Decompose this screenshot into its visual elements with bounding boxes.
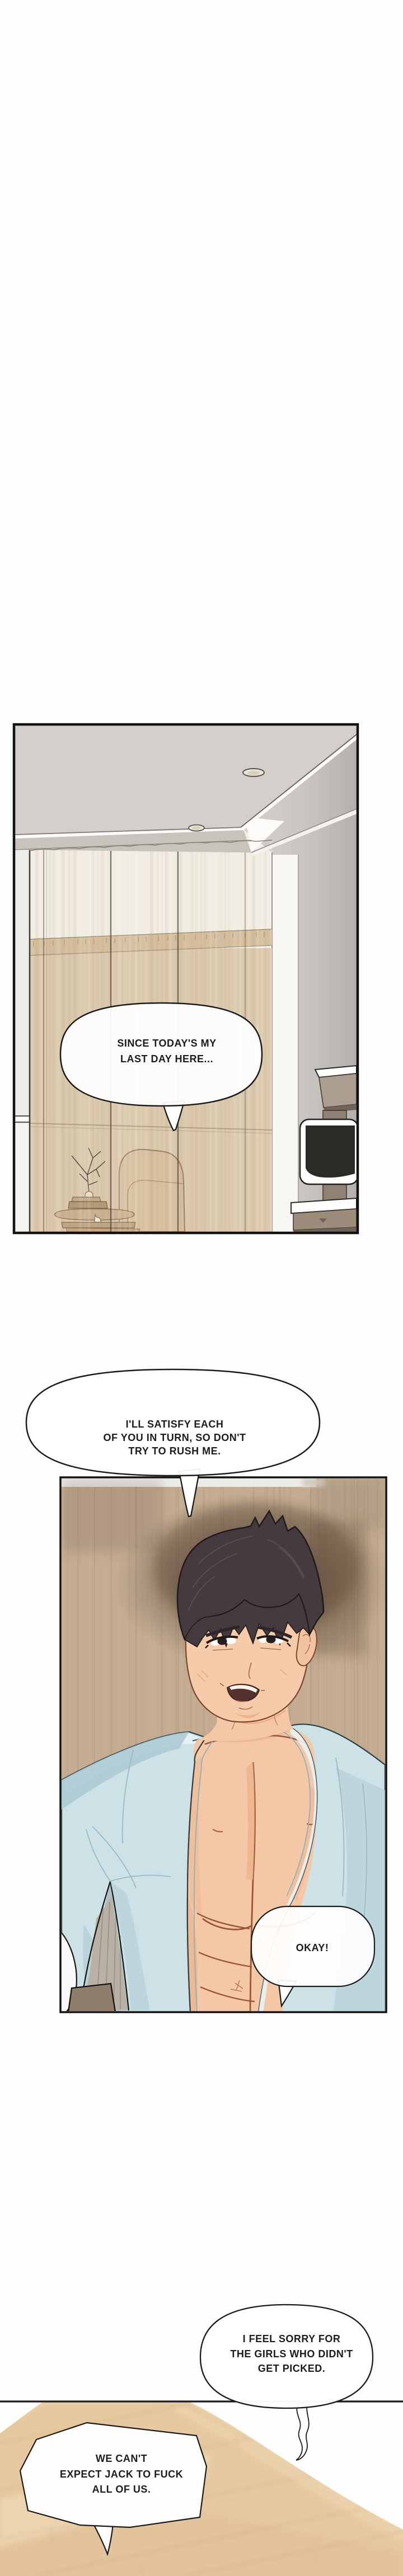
svg-text:I FEEL SORRY FOR: I FEEL SORRY FOR (243, 2333, 341, 2344)
svg-text:WE CAN'T: WE CAN'T (96, 2453, 147, 2464)
svg-text:OF YOU IN TURN, SO DON'T: OF YOU IN TURN, SO DON'T (104, 1432, 246, 1443)
svg-text:SINCE TODAY'S MY: SINCE TODAY'S MY (117, 1038, 216, 1049)
svg-text:ALL OF US.: ALL OF US. (92, 2484, 151, 2495)
svg-text:THE GIRLS WHO DIDN'T: THE GIRLS WHO DIDN'T (230, 2348, 353, 2360)
svg-text:I'LL SATISFY EACH: I'LL SATISFY EACH (126, 1419, 224, 1430)
svg-text:TRY TO RUSH ME.: TRY TO RUSH ME. (128, 1445, 221, 1457)
svg-text:EXPECT JACK TO FUCK: EXPECT JACK TO FUCK (60, 2469, 183, 2480)
svg-text:LAST DAY HERE...: LAST DAY HERE... (120, 1053, 213, 1065)
svg-text:GET PICKED.: GET PICKED. (258, 2363, 326, 2374)
svg-text:OKAY!: OKAY! (296, 1942, 329, 1953)
